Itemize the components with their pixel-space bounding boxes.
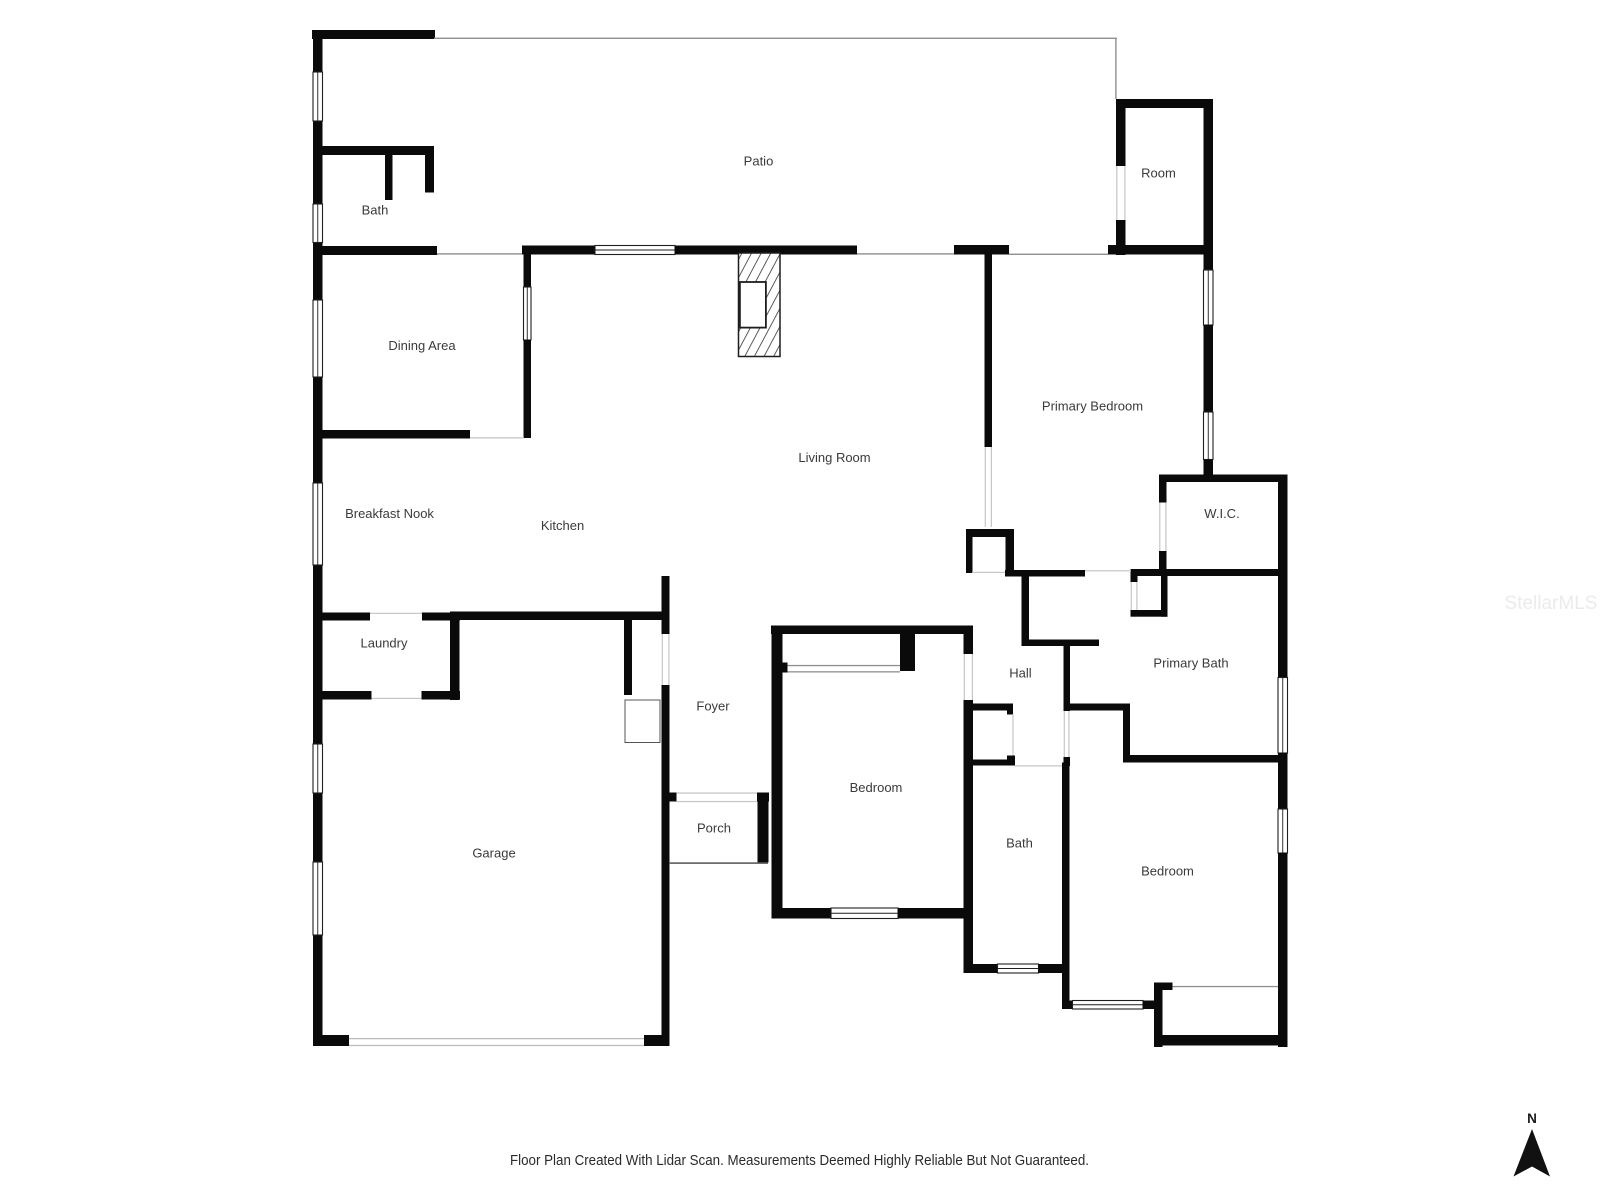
- svg-text:StellarMLS: StellarMLS: [1505, 593, 1598, 614]
- svg-text:Kitchen: Kitchen: [541, 518, 584, 533]
- svg-text:Breakfast Nook: Breakfast Nook: [345, 506, 434, 521]
- svg-text:Bedroom: Bedroom: [850, 780, 903, 795]
- svg-text:Bath: Bath: [1006, 836, 1033, 851]
- svg-text:Floor Plan Created With Lidar: Floor Plan Created With Lidar Scan. Meas…: [510, 1152, 1089, 1169]
- svg-text:W.I.C.: W.I.C.: [1204, 506, 1239, 521]
- svg-text:Hall: Hall: [1009, 666, 1032, 681]
- svg-text:Primary Bedroom: Primary Bedroom: [1042, 399, 1143, 414]
- svg-text:Primary Bath: Primary Bath: [1153, 656, 1228, 671]
- svg-text:N: N: [1527, 1111, 1537, 1126]
- svg-text:Bath: Bath: [362, 203, 389, 218]
- svg-text:Laundry: Laundry: [361, 636, 408, 651]
- svg-text:Foyer: Foyer: [696, 699, 730, 714]
- svg-text:Patio: Patio: [744, 154, 774, 169]
- svg-text:Bedroom: Bedroom: [1141, 864, 1194, 879]
- svg-text:Living Room: Living Room: [798, 450, 870, 465]
- svg-text:Dining Area: Dining Area: [388, 338, 456, 353]
- svg-text:Garage: Garage: [472, 846, 515, 861]
- svg-text:Porch: Porch: [697, 821, 731, 836]
- svg-text:Room: Room: [1141, 166, 1176, 181]
